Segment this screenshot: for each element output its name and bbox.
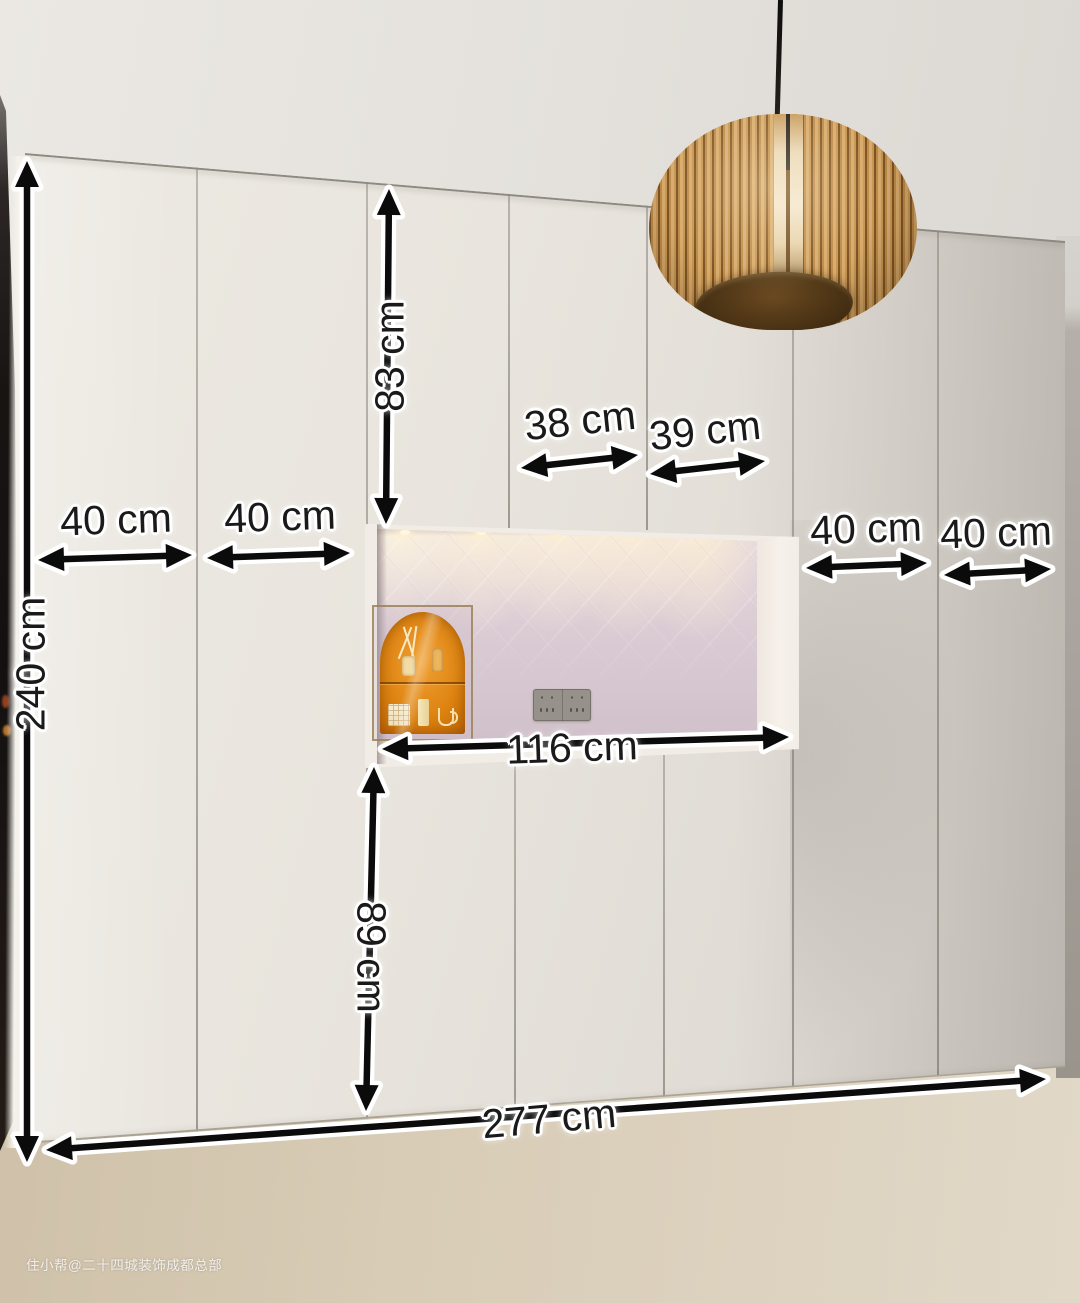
socket-left	[533, 689, 562, 721]
niche-spotlight	[400, 530, 410, 535]
orange-display-cabinet	[372, 605, 473, 741]
lamp-shading	[649, 114, 917, 330]
watermark: 住小帮@二十四城装饰成都总部	[26, 1254, 222, 1274]
power-outlet	[533, 689, 591, 721]
niche-right-jamb	[757, 518, 799, 770]
door-seam	[196, 150, 198, 1150]
niche-cast-shadow	[790, 520, 1080, 1080]
socket-right	[562, 689, 592, 721]
door-seam	[663, 755, 665, 1123]
wooden-pendant-lamp	[649, 114, 917, 330]
door-seam	[646, 165, 648, 530]
glass-reflection	[380, 612, 465, 734]
annotated-photo: 240 cm83 cm38 cm39 cm40 cm40 cm40 cm40 c…	[0, 0, 1080, 1303]
display-niche	[363, 518, 799, 770]
display-cabinet-arch-door	[380, 612, 465, 734]
door-seam	[514, 758, 516, 1126]
door-seam	[508, 160, 510, 528]
niche-spotlight	[553, 530, 563, 535]
